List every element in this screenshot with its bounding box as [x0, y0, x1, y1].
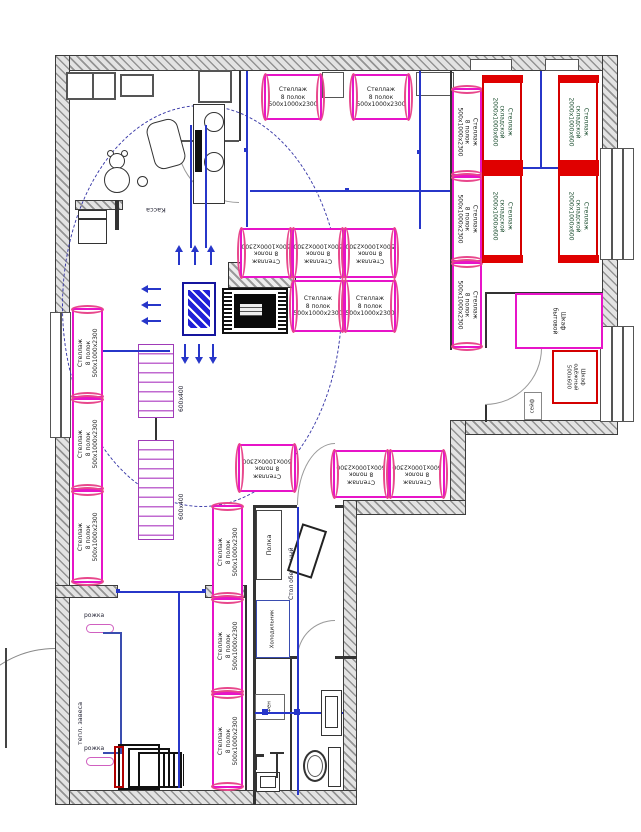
airflow-arrow-icon: [148, 320, 161, 322]
niche-top-1: [198, 70, 232, 103]
faucet-icon: [254, 756, 257, 770]
airflow-arrow-icon: [178, 252, 180, 265]
airflow-arrow-icon: [148, 304, 161, 306]
window-mullion: [622, 149, 624, 259]
shelf-end-cap: [289, 227, 298, 279]
office-cabinet-line: [78, 218, 107, 220]
shelf-8-unit: Стеллаж8 полок500x1000x2300: [72, 490, 103, 583]
kitchen-shelf: Полка: [256, 510, 282, 580]
shelf-8-unit: Стеллаж8 полок500x1000x2300: [344, 228, 396, 278]
partition-bath-divider-b: [335, 656, 357, 659]
shelf-8-unit: Стеллаж8 полок500x1000x2300: [72, 308, 103, 398]
toilet-seat: [307, 755, 323, 777]
storage-shelf-unit: Стеллажскладской2000x1000x600: [482, 168, 522, 263]
dimension-tick: [244, 148, 248, 152]
computer-tower: [195, 130, 202, 172]
cash-desk-comb: [278, 292, 286, 330]
partition-bath-inner: [290, 659, 292, 790]
tap-stand-icon: [276, 752, 278, 778]
shelf-8-unit: Стеллаж8 полок500x1000x2300: [240, 228, 292, 278]
shelf-end-cap: [330, 449, 339, 499]
shelf-end-cap: [237, 227, 246, 279]
thermal-curtain-label: тепл. завеса: [76, 702, 84, 745]
monitor-icon: [204, 152, 224, 172]
storage-shelf-unit: Стеллажскладской2000x1000x600: [482, 75, 522, 168]
window-top-2: [120, 74, 154, 97]
dimension-tick: [116, 589, 120, 593]
stool: [137, 176, 148, 187]
fridge: Холодильник: [256, 600, 290, 658]
shelf-8-unit: Стеллаж8 полок500x1000x2300: [264, 74, 322, 120]
partition-utility-left-a: [485, 292, 487, 348]
toilet-cistern: [328, 747, 341, 787]
shelf-end-cap: [451, 259, 483, 268]
window-right-2: [600, 326, 634, 422]
window-right-1: [600, 148, 634, 260]
niche-top-4: [470, 59, 512, 71]
shelf-end-cap: [211, 502, 244, 511]
airflow-arrow-icon: [198, 344, 200, 357]
storage-shelf-unit: Стеллажскладской2000x1000x600: [558, 75, 598, 168]
shelf-8-unit: Стеллаж8 полок500x1000x2300: [238, 444, 296, 492]
shelf-end-cap: [211, 595, 244, 604]
shelf-end-cap: [211, 782, 244, 791]
shelf-8-unit: Стеллаж8 полок500x1000x2300: [212, 505, 243, 598]
dimension-tick: [345, 188, 349, 192]
hand-dryer: Фен: [255, 694, 285, 720]
wall-kitchen-right: [343, 500, 357, 805]
shelf-8-unit: Стеллаж8 полок500x1000x2300: [292, 280, 344, 332]
shelf-8-unit: Стеллаж8 полок500x1000x2300: [344, 280, 396, 332]
storage-shelf-cap: [483, 168, 523, 176]
kassa-label: Касса: [146, 206, 166, 214]
airflow-arrow-icon: [184, 344, 186, 357]
window-mullion: [622, 327, 624, 421]
dimension-line: [250, 190, 450, 192]
airflow-arrow-icon: [148, 288, 161, 290]
shelf-end-cap: [341, 227, 350, 279]
niche-top-5: [545, 59, 579, 71]
dimension-line: [190, 125, 192, 248]
shelf-end-cap: [71, 577, 104, 586]
shelf-end-cap: [451, 85, 483, 94]
shelf-end-cap: [211, 690, 244, 699]
shelf-end-cap: [261, 73, 270, 121]
airflow-arrow-icon: [194, 252, 196, 265]
safe-label: сейф: [530, 399, 537, 414]
dimension-line: [118, 591, 205, 593]
rack-label: 600x400: [178, 494, 185, 520]
shelf-8-unit: Стеллаж8 полок500x1000x2300: [212, 598, 243, 693]
office-cabinet: [78, 210, 107, 244]
airflow-arrow-icon: [210, 252, 212, 265]
dimension-tick: [202, 589, 206, 593]
shelf-end-cap: [390, 279, 399, 333]
hook-label: рожка: [84, 745, 104, 752]
shelf-end-cap: [235, 443, 244, 493]
window-mullion: [92, 74, 94, 98]
rack-label: 600x400: [178, 386, 185, 412]
shelf-end-cap: [289, 279, 298, 333]
partition-kitchen-top-a: [253, 505, 297, 508]
wardrobe-label: одёжный: [572, 363, 579, 390]
storage-shelf-cap: [483, 255, 523, 263]
window-mullion: [611, 327, 613, 421]
window-mullion: [60, 313, 62, 437]
wardrobe-label: Шкаф: [578, 368, 585, 385]
fridge-label: Холодильник: [270, 610, 277, 649]
plumbing-node: [262, 709, 268, 715]
partition-utility-left-b: [485, 405, 487, 422]
wall-kitchen-top: [343, 500, 466, 515]
monitor-icon: [204, 112, 224, 132]
wardrobe: Шкаф одёжный 500x600: [552, 350, 598, 404]
wall-bottom: [55, 790, 357, 805]
cash-desk-comb: [224, 292, 232, 330]
niche-top-3: [416, 72, 454, 96]
stacked-chairs-red: [114, 746, 124, 788]
shelf-8-unit: Стеллаж8 полок500x1000x2300: [72, 398, 103, 490]
faucet-icon: [254, 754, 264, 757]
utility-cabinet-label: Шкаф: [559, 312, 567, 331]
rack-600x400: [138, 344, 174, 418]
teddy-bear-icon: [104, 167, 130, 193]
shelf-end-cap: [386, 449, 395, 499]
cash-desk-display: [240, 304, 262, 316]
thermal-curtain-bracket: [103, 632, 120, 634]
shelf-8-unit: Стеллаж8 полок500x1000x2300: [292, 228, 344, 278]
wall-rightwing-bottom: [450, 420, 618, 435]
shelf-end-cap: [341, 279, 350, 333]
niche-top-2: [322, 72, 344, 98]
bathroom-sink-basin: [325, 696, 338, 728]
dining-table: [287, 523, 327, 579]
stacked-chairs-slats: [158, 754, 184, 786]
shelf-8-unit: Стеллаж8 полок500x1000x2300: [452, 262, 482, 348]
shelf-end-cap: [71, 487, 104, 496]
kitchen-shelf-label: Полка: [265, 535, 273, 556]
airflow-arrow-icon: [212, 344, 214, 357]
storage-shelf-unit: Стеллажскладской2000x1000x600: [558, 168, 598, 263]
storage-shelf-cap: [483, 75, 523, 83]
floor-plan: Касса 600x400 600x400 Шкаф бытовой Шкаф …: [0, 0, 641, 832]
window-mullion: [611, 149, 613, 259]
shelf-end-cap: [451, 173, 483, 182]
wall-blroom-top-left: [55, 585, 118, 598]
shelf-8-unit: Стеллаж8 полок500x1000x2300: [352, 74, 410, 120]
dimension-line: [178, 592, 180, 788]
shelf-end-cap: [451, 342, 483, 351]
window-top-1: [66, 72, 116, 100]
shelf-end-cap: [404, 73, 413, 121]
wall-top: [55, 55, 618, 71]
shelf-8-unit: Стеллаж8 полок500x1000x2300: [452, 176, 482, 262]
tap-stand-icon: [270, 752, 284, 754]
door-arc-bathroom: [297, 620, 335, 658]
shelf-end-cap: [290, 443, 299, 493]
dimension-line: [205, 125, 207, 248]
door-arc-entrance: [0, 648, 55, 748]
partition-kitchen-top-b: [335, 505, 343, 508]
storage-shelf-cap: [559, 160, 599, 168]
dimension-tick: [417, 150, 421, 154]
shelf-end-cap: [349, 73, 358, 121]
utility-cabinet: Шкаф бытовой: [515, 293, 603, 349]
coat-hook: [86, 757, 114, 766]
hook-label: рожка: [84, 612, 104, 619]
shelf-end-cap: [316, 73, 325, 121]
shelf-end-cap: [71, 305, 104, 314]
storage-shelf-cap: [483, 160, 523, 168]
safe: сейф: [524, 392, 542, 420]
shelf-8-unit: Стеллаж8 полок500x1000x2300: [389, 450, 445, 498]
door-leaf-entrance: [5, 648, 7, 748]
storage-shelf-cap: [559, 75, 599, 83]
shelf-8-unit: Стеллаж8 полок500x1000x2300: [333, 450, 389, 498]
shelf-end-cap: [390, 227, 399, 279]
dimension-line: [102, 350, 170, 352]
utility-cabinet-label: бытовой: [552, 308, 560, 335]
storage-shelf-cap: [559, 255, 599, 263]
wardrobe-label: 500x600: [565, 365, 572, 389]
shelf-8-unit: Стеллаж8 полок500x1000x2300: [212, 693, 243, 788]
dimension-line: [540, 71, 542, 167]
air-curtain-glass: [188, 290, 210, 328]
shelf-8-unit: Стеллаж8 полок500x1000x2300: [452, 88, 482, 176]
rack-600x400: [138, 440, 174, 540]
storage-shelf-cap: [559, 168, 599, 176]
plumbing-riser-line: [297, 507, 299, 795]
shelf-end-cap: [439, 449, 448, 499]
partition-blroom-right: [245, 585, 247, 790]
rack-connector: [155, 418, 157, 440]
mop-basin-inner: [260, 776, 276, 788]
shelf-end-cap: [71, 395, 104, 404]
thermal-curtain-bracket: [120, 632, 122, 754]
